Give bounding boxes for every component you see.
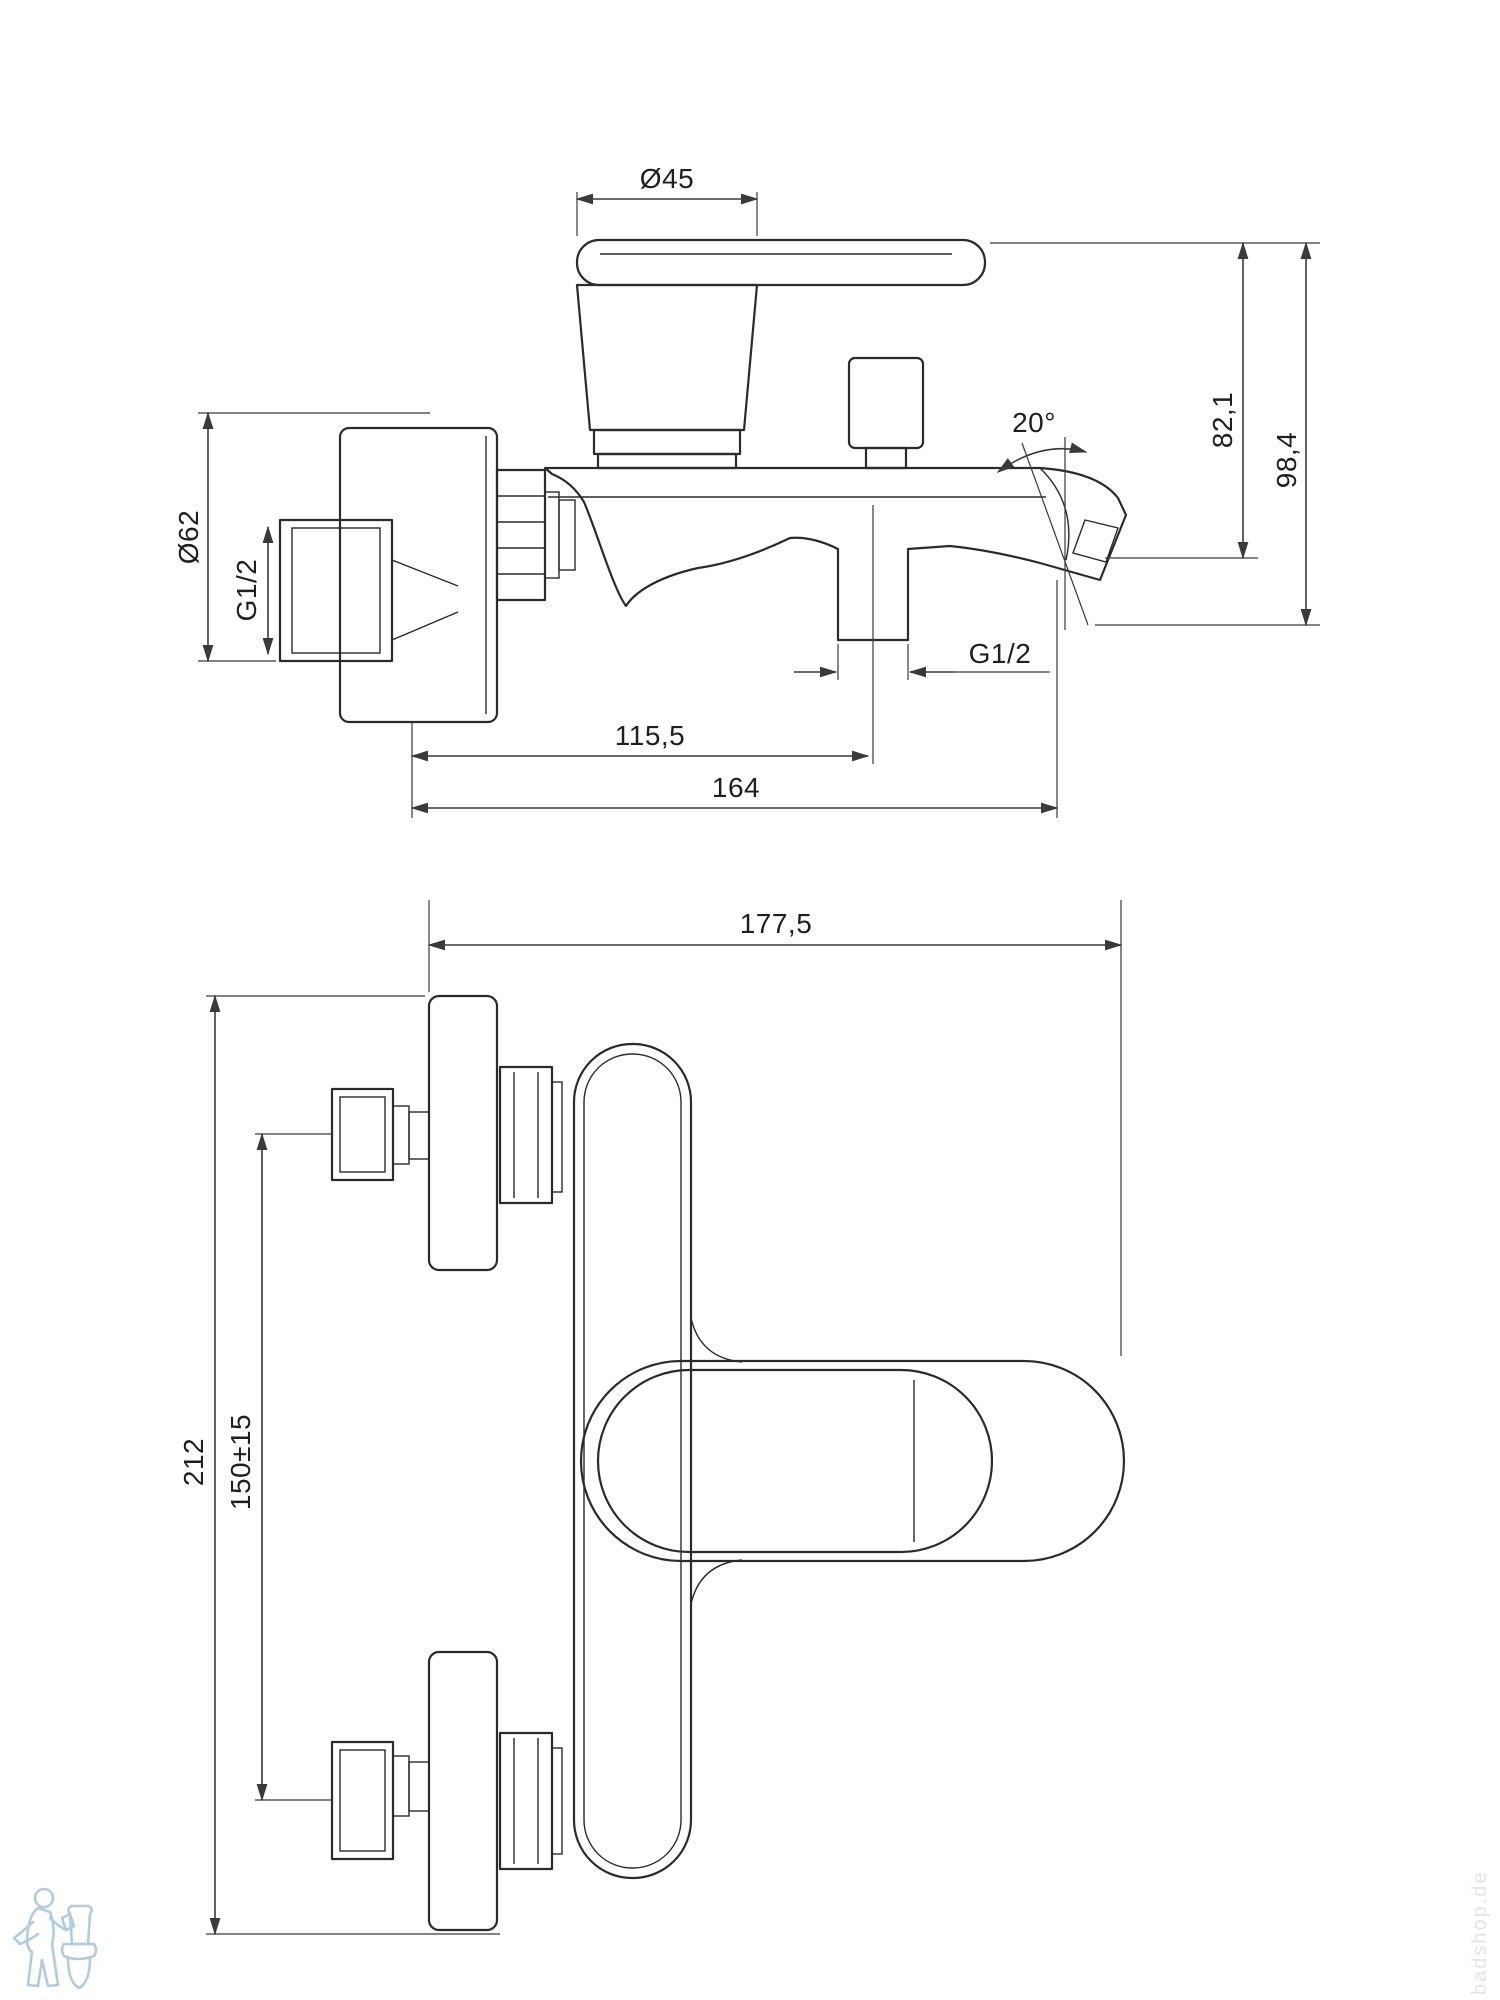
body-lever-fillet-top	[691, 1318, 742, 1362]
wall-connector-bottom-inner	[340, 1750, 385, 1851]
diverter-stem	[866, 448, 906, 468]
dim-label-connection-distance: 150±15	[225, 1414, 256, 1510]
dim-label-wall-thread: G1/2	[231, 559, 262, 622]
eccentric-pipe-lower	[392, 612, 458, 640]
side-view: Ø45 82,1 98,4 20° Ø62 G1/2 G1/2	[173, 163, 1320, 818]
dim-label-spout-reach: 164	[712, 772, 760, 803]
lever-outer	[581, 1361, 1124, 1561]
cartridge-cap-side	[577, 285, 757, 430]
hex-nut-side	[497, 470, 545, 600]
dim-label-cap-diameter: Ø45	[640, 163, 694, 194]
wall-union-side	[280, 520, 392, 661]
front-view: 177,5 212 150±15	[178, 900, 1124, 1934]
watermark-text: badshop.de	[1469, 1870, 1491, 1995]
dim-label-total-height: 212	[178, 1438, 209, 1486]
dim-label-flange-diameter: Ø62	[173, 510, 204, 564]
dim-label-height-to-spout: 82,1	[1207, 392, 1238, 449]
dim-label-spout-center-offset: 115,5	[615, 720, 686, 751]
diverter-stub	[849, 358, 923, 448]
pipe-ring	[393, 1756, 409, 1816]
wall-plate-top	[429, 996, 497, 1270]
pipe-ring	[393, 1106, 409, 1164]
technical-drawing-page: Ø45 82,1 98,4 20° Ø62 G1/2 G1/2	[0, 0, 1500, 2000]
body-column	[598, 454, 736, 468]
wall-connector-top-inner	[340, 1097, 385, 1172]
lever-face	[598, 1370, 992, 1552]
pipe-ring	[552, 1748, 562, 1854]
pipe-ring	[545, 492, 559, 578]
wall-connector-bottom	[332, 1742, 393, 1859]
dim-label-spout-angle: 20°	[1012, 407, 1056, 438]
hex-nut-top	[500, 1067, 552, 1203]
dim-label-shower-thread: G1/2	[969, 638, 1032, 669]
pipe-ring	[409, 1112, 429, 1159]
faucet-technical-drawing: Ø45 82,1 98,4 20° Ø62 G1/2 G1/2	[0, 0, 1500, 2000]
aerator-face	[1073, 520, 1118, 562]
wall-plate-bottom	[429, 1652, 497, 1930]
watermark-logo	[14, 1889, 96, 1988]
eccentric-pipe-upper	[392, 560, 458, 586]
toilet-bowl	[68, 1958, 90, 1988]
plumber-arm-left	[14, 1922, 38, 1944]
wall-plate-side	[340, 428, 497, 722]
toilet-rim	[62, 1944, 96, 1959]
body-capsule	[574, 1044, 691, 1878]
lever-blade-side	[577, 240, 985, 285]
cartridge-ring	[594, 430, 740, 454]
toilet-tank	[68, 1906, 91, 1944]
dim-label-total-width: 177,5	[740, 908, 813, 939]
wall-connector-top	[332, 1089, 393, 1180]
pipe-ring	[409, 1762, 429, 1811]
hex-nut-bottom	[500, 1733, 552, 1869]
wall-union-inner	[292, 528, 380, 653]
pipe-ring	[559, 500, 575, 570]
spout-arm-outline	[545, 468, 1126, 640]
body-lever-fillet-bottom	[691, 1560, 742, 1604]
dim-label-height-total: 98,4	[1271, 432, 1302, 489]
plumber-head	[35, 1889, 53, 1907]
pipe-ring	[552, 1082, 562, 1192]
